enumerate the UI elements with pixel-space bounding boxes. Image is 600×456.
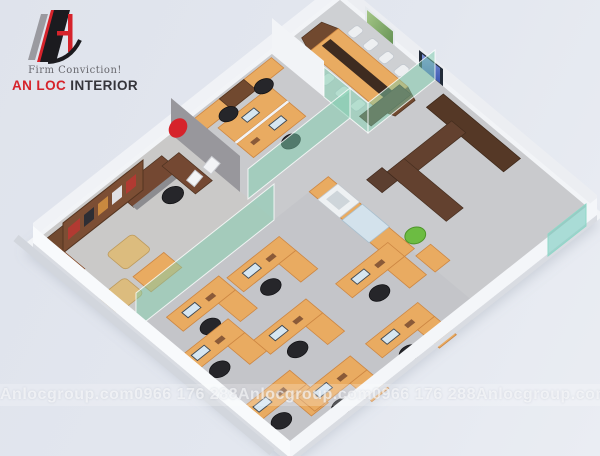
brand-secondary: INTERIOR	[70, 78, 138, 93]
render-page: { "logo": { "tagline": "Firm Conviction!…	[0, 0, 600, 456]
logo-tagline: Firm Conviction!	[10, 65, 140, 76]
brand-name: AN LOC INTERIOR	[10, 78, 140, 93]
logo-mark	[10, 6, 88, 64]
company-logo: Firm Conviction! AN LOC INTERIOR	[10, 6, 140, 93]
brand-primary: AN LOC	[12, 78, 66, 93]
